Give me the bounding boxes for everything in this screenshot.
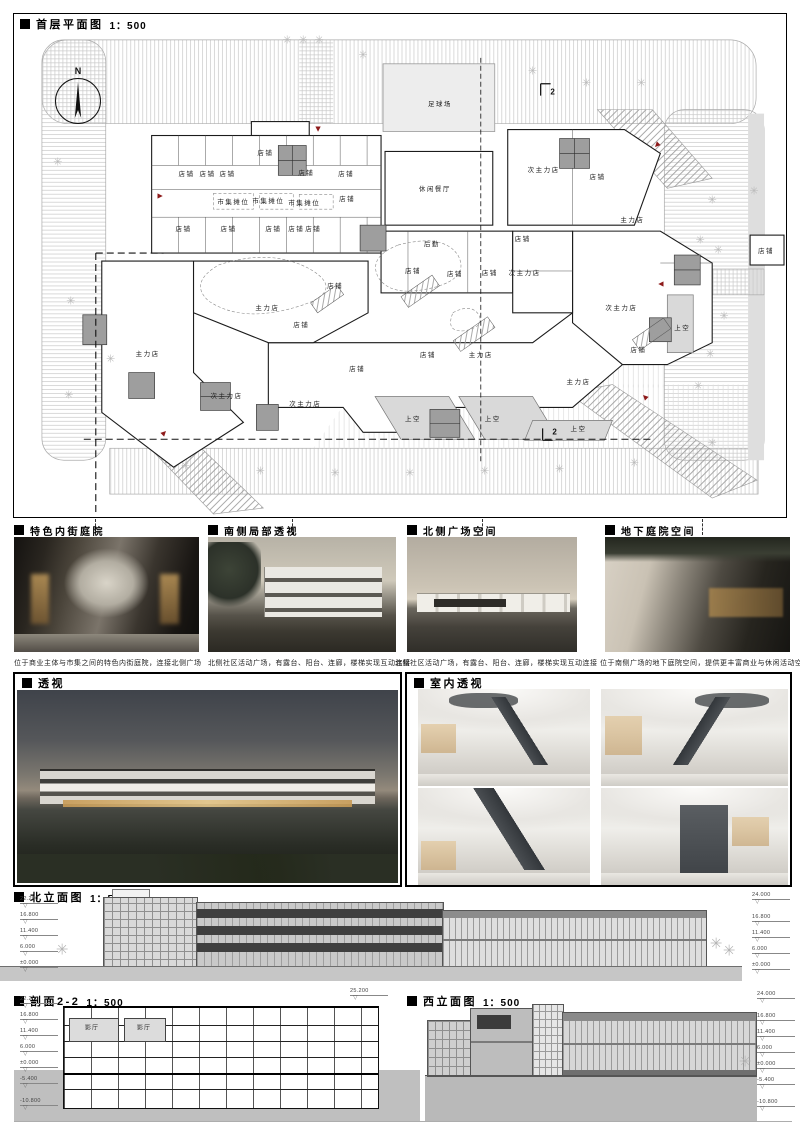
title-square-icon bbox=[208, 525, 218, 535]
level-marker: ±0.000▽ bbox=[20, 1060, 58, 1072]
interior-title: 室内透视 bbox=[414, 676, 484, 690]
photo-storefront bbox=[605, 716, 642, 755]
section-building bbox=[63, 1006, 379, 1109]
level-marker: -10.800▽ bbox=[20, 1098, 58, 1110]
level-marker: 6.000▽ bbox=[20, 944, 58, 956]
basement-datum-line bbox=[14, 1121, 792, 1122]
level-marker: ±0.000▽ bbox=[752, 962, 790, 974]
level-marker: 22.200▽ bbox=[20, 996, 58, 1008]
title-square-icon bbox=[20, 19, 30, 29]
site-plan-drawing bbox=[14, 14, 786, 517]
level-marker: 16.800▽ bbox=[20, 1012, 58, 1024]
north-label: N bbox=[54, 66, 102, 76]
photo1-caption: 位于商业主体与市集之间的特色内街庭院，连接北侧广场 bbox=[14, 658, 199, 668]
photo-ground bbox=[601, 873, 788, 885]
photo-storefront bbox=[732, 817, 769, 846]
title-square-icon bbox=[407, 996, 417, 1006]
tree-icon: ✳ bbox=[739, 1055, 752, 1070]
tree-icon: ✳ bbox=[710, 937, 723, 952]
photo-tree bbox=[17, 854, 398, 883]
photo-building bbox=[40, 769, 375, 804]
photo-south-view bbox=[208, 537, 396, 652]
level-marker: 11.400▽ bbox=[20, 1028, 58, 1040]
elev-floor-line bbox=[471, 1041, 533, 1043]
photo-ground bbox=[418, 774, 590, 786]
photo-inner-street bbox=[14, 537, 199, 652]
level-marker: 6.000▽ bbox=[20, 1044, 58, 1056]
elev-floor-line bbox=[563, 1043, 756, 1045]
perspective-panel bbox=[13, 672, 402, 887]
title-square-icon bbox=[14, 525, 24, 535]
elev-right-wing bbox=[442, 910, 707, 969]
photo4-caption: 位于南侧广场的地下庭院空间，提供更丰富商业与休闲活动空间 bbox=[600, 658, 795, 668]
level-marker: ±0.000▽ bbox=[757, 1061, 795, 1073]
photo-light bbox=[31, 574, 50, 625]
interior-panel bbox=[405, 672, 792, 887]
level-marker: -5.400▽ bbox=[757, 1077, 795, 1089]
title-square-icon bbox=[407, 525, 417, 535]
title-square-icon bbox=[414, 678, 424, 688]
level-marker: 16.800▽ bbox=[20, 912, 58, 924]
level-marker: 6.000▽ bbox=[757, 1045, 795, 1057]
ground-line bbox=[425, 1075, 757, 1076]
floor-slab bbox=[64, 1089, 378, 1090]
photo-tree bbox=[208, 542, 261, 611]
elev-window-band bbox=[197, 909, 443, 918]
photo-interior-1 bbox=[418, 689, 590, 786]
elev-fascia bbox=[443, 911, 706, 918]
photo2-caption: 北侧社区活动广场，有露台、阳台、连廊，楼梯实现互动连接 bbox=[208, 658, 396, 668]
photo3-caption: 北侧社区活动广场，有露台、阳台、连廊，楼梯实现互动连接 bbox=[395, 658, 590, 668]
photo-interior-3 bbox=[418, 788, 590, 885]
level-marker: 25.200▽ bbox=[350, 988, 388, 1000]
level-marker: -10.800▽ bbox=[757, 1099, 795, 1111]
photo-glass bbox=[434, 599, 505, 607]
presentation-board: N ✳✳✳✳✳✳✳✳✳✳✳✳✳✳✳✳✳✳✳✳✳✳✳✳✳✳ ▲▲▲▲▲▲ 足球场休… bbox=[0, 0, 800, 1132]
photo-interior-2 bbox=[601, 689, 788, 786]
elev-window-band bbox=[197, 943, 443, 952]
photo-tree bbox=[605, 537, 790, 562]
photo-light bbox=[63, 800, 353, 807]
floor-plan-panel: N ✳✳✳✳✳✳✳✳✳✳✳✳✳✳✳✳✳✳✳✳✳✳✳✳✳✳ ▲▲▲▲▲▲ 足球场休… bbox=[13, 13, 787, 518]
ground-fill bbox=[425, 1075, 757, 1121]
photo3-title: 北侧广场空间 bbox=[407, 523, 498, 537]
photo-escalator bbox=[452, 788, 572, 870]
tree-icon: ✳ bbox=[723, 944, 736, 959]
level-marker: 11.400▽ bbox=[20, 928, 58, 940]
photo-north-plaza bbox=[407, 537, 577, 652]
level-marker: 24.000▽ bbox=[757, 991, 795, 1003]
elev-fascia bbox=[563, 1013, 756, 1021]
elev-window-band bbox=[197, 926, 443, 935]
level-marker: 24.000▽ bbox=[752, 892, 790, 904]
floor-slab-ground bbox=[64, 1073, 378, 1075]
level-marker: -5.400▽ bbox=[20, 1076, 58, 1088]
elev-right-band bbox=[562, 1012, 757, 1077]
level-marker: 22.200▽ bbox=[20, 896, 58, 908]
elev-mass bbox=[470, 1008, 534, 1077]
cinema-label: 影厅 bbox=[137, 1023, 151, 1032]
north-arrow: N bbox=[54, 66, 102, 124]
photo-storefront bbox=[421, 724, 455, 753]
photo-light bbox=[160, 574, 179, 625]
photo2-title: 南侧局部透视 bbox=[208, 523, 299, 537]
photo-storefront bbox=[421, 841, 455, 870]
photo-ground bbox=[14, 634, 199, 652]
ground-fill bbox=[0, 967, 742, 981]
level-marker: 6.000▽ bbox=[752, 946, 790, 958]
level-marker: 16.800▽ bbox=[752, 914, 790, 926]
photo4-title: 地下庭院空间 bbox=[605, 523, 696, 537]
level-marker: 11.400▽ bbox=[752, 930, 790, 942]
elev-window-band bbox=[477, 1015, 511, 1029]
photo-escalator bbox=[657, 697, 741, 765]
photo1-title: 特色内街庭院 bbox=[14, 523, 105, 537]
level-marker: 11.400▽ bbox=[757, 1029, 795, 1041]
photo-ground bbox=[601, 774, 788, 786]
photo-aerial-perspective bbox=[17, 690, 398, 883]
level-marker: ±0.000▽ bbox=[20, 960, 58, 972]
elev-left-block bbox=[103, 897, 198, 969]
title-square-icon bbox=[605, 525, 615, 535]
photo-ground bbox=[418, 873, 590, 885]
photo-interior-4 bbox=[601, 788, 788, 885]
leader-line bbox=[702, 519, 703, 535]
elev-floor-line bbox=[443, 939, 706, 941]
photo-sunken-court bbox=[605, 537, 790, 652]
cinema-label: 影厅 bbox=[85, 1023, 99, 1032]
west-elevation-title: 西立面图1：500 bbox=[407, 994, 520, 1008]
north-arrow-circle bbox=[55, 78, 101, 124]
floor-slab bbox=[64, 1057, 378, 1058]
elev-glass-tower bbox=[532, 1004, 564, 1077]
photo-building bbox=[264, 567, 382, 618]
photo-escalator bbox=[483, 697, 560, 765]
north-needle bbox=[70, 82, 86, 118]
perspective-title: 透视 bbox=[22, 676, 65, 690]
photo-light bbox=[709, 588, 783, 618]
plan-title: 首层平面图 1：500 bbox=[20, 17, 147, 31]
elev-mid-block bbox=[196, 902, 444, 969]
level-marker: 16.800▽ bbox=[757, 1013, 795, 1025]
title-square-icon bbox=[22, 678, 32, 688]
